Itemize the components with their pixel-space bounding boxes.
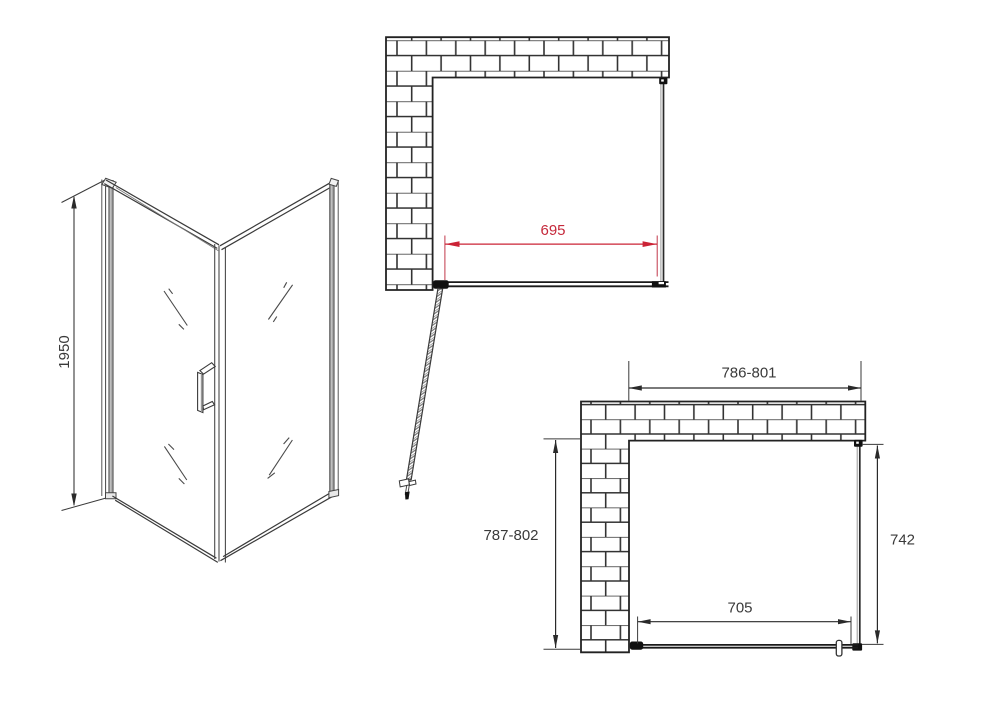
svg-text:1950: 1950	[56, 335, 73, 368]
svg-text:742: 742	[890, 531, 915, 548]
svg-text:786-801: 786-801	[721, 364, 776, 381]
svg-text:787-802: 787-802	[483, 527, 538, 544]
svg-text:695: 695	[540, 222, 565, 239]
svg-text:705: 705	[727, 600, 752, 617]
